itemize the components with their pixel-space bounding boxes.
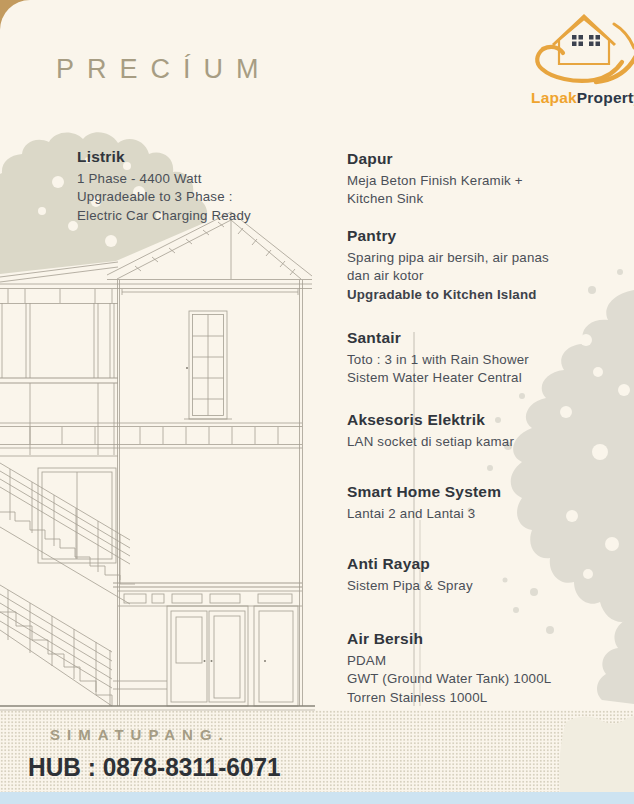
feature-line: Upgradeable to 3 Phase : <box>77 188 251 206</box>
feature-line: Sistem Pipa & Spray <box>347 577 473 595</box>
feature-title: Pantry <box>347 226 549 245</box>
feature-section-anti-rayap: Anti Rayap Sistem Pipa & Spray <box>347 554 473 595</box>
feature-section-smart-home: Smart Home System Lantai 2 and Lantai 3 <box>347 482 501 523</box>
phone-label: HUB : 0878-8311-6071 <box>28 752 281 783</box>
house-lines <box>0 212 315 710</box>
brand-wordmark: LapakProperty <box>531 89 634 107</box>
feature-section-santair: Santair Toto : 3 in 1 with Rain Shower S… <box>347 328 529 388</box>
feature-line: Lantai 2 and Lantai 3 <box>347 505 501 523</box>
feature-line: LAN socket di setiap kamar <box>347 433 514 451</box>
feature-title: Dapur <box>347 149 523 168</box>
feature-line: dan air kotor <box>347 267 549 285</box>
feature-line: GWT (Ground Water Tank) 1000L <box>347 670 551 688</box>
location-label: SIMATUPANG. <box>50 726 230 743</box>
feature-title: Aksesoris Elektrik <box>347 410 514 429</box>
feature-section-pantry: Pantry Sparing pipa air bersih, air pana… <box>347 226 549 304</box>
feature-title: Smart Home System <box>347 482 501 501</box>
feature-line: Meja Beton Finish Keramik + <box>347 172 523 190</box>
feature-title: Santair <box>347 328 529 347</box>
page-sheet: PRECÍUM LapakProperty Listrik 1 Phase - … <box>0 0 634 804</box>
brand-first-word: Lapak <box>531 89 577 106</box>
page-title: PRECÍUM <box>56 54 272 85</box>
feature-section-dapur: Dapur Meja Beton Finish Keramik + Kitche… <box>347 149 523 209</box>
feature-line: Sparing pipa air bersih, air panas <box>347 249 549 267</box>
hand-holding-house-icon <box>537 16 634 82</box>
feature-title: Anti Rayap <box>347 554 473 573</box>
feature-line: Electric Car Charging Ready <box>77 207 251 225</box>
feature-line: 1 Phase - 4400 Watt <box>77 170 251 188</box>
feature-line: Upgradable to Kitchen Island <box>347 286 549 304</box>
feature-line: Kitchen Sink <box>347 190 523 208</box>
brand-second-word: Property <box>577 89 634 106</box>
feature-title: Listrik <box>77 147 251 166</box>
feature-section-aksesoris-elektrik: Aksesoris Elektrik LAN socket di setiap … <box>347 410 514 451</box>
feature-line: Sistem Water Heater Central <box>347 369 529 387</box>
feature-line: Toto : 3 in 1 with Rain Shower <box>347 351 529 369</box>
bottom-strip <box>0 792 634 804</box>
feature-line: Torren Stainless 1000L <box>347 689 551 707</box>
feature-line: PDAM <box>347 652 551 670</box>
feature-section-listrik: Listrik 1 Phase - 4400 Watt Upgradeable … <box>77 147 251 225</box>
feature-section-air-bersih: Air Bersih PDAM GWT (Ground Water Tank) … <box>347 629 551 707</box>
feature-title: Air Bersih <box>347 629 551 648</box>
